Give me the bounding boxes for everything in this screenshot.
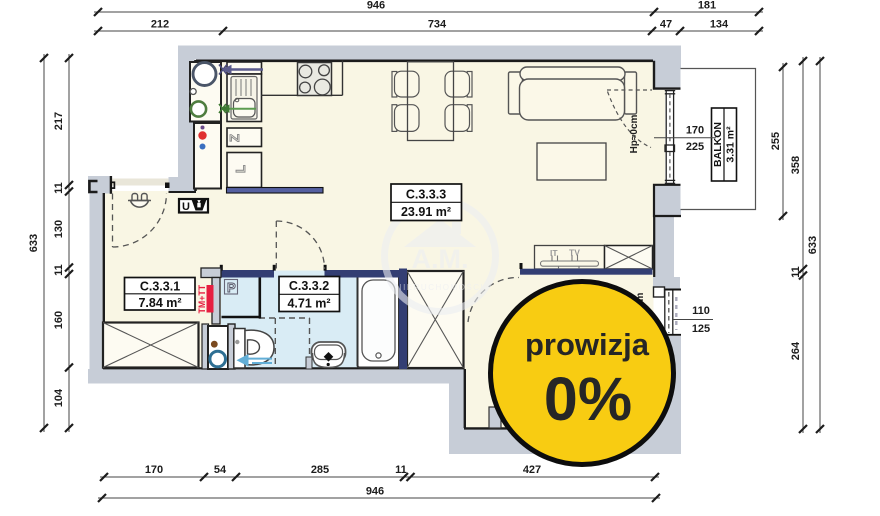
- svg-text:11: 11: [53, 264, 65, 276]
- svg-text:427: 427: [523, 464, 541, 476]
- svg-text:TM+TT: TM+TT: [197, 284, 207, 313]
- svg-text:11: 11: [53, 182, 65, 194]
- svg-text:C.3.3.1: C.3.3.1: [140, 280, 180, 294]
- svg-text:255: 255: [770, 132, 782, 150]
- svg-text:285: 285: [311, 464, 329, 476]
- svg-text:C.3.3.3: C.3.3.3: [406, 188, 446, 202]
- svg-text:130: 130: [53, 220, 65, 238]
- svg-text:A.M.: A.M.: [412, 244, 469, 274]
- svg-text:264: 264: [790, 341, 802, 360]
- svg-text:181: 181: [698, 0, 716, 12]
- svg-text:prowizja: prowizja: [525, 327, 650, 362]
- svg-text:225: 225: [686, 141, 704, 153]
- svg-text:NIERUCHOMOŚCI: NIERUCHOMOŚCI: [396, 283, 484, 292]
- svg-text:125: 125: [692, 323, 710, 335]
- svg-text:P: P: [227, 280, 236, 295]
- svg-text:110: 110: [692, 305, 710, 317]
- svg-text:0%: 0%: [544, 365, 632, 433]
- svg-text:633: 633: [28, 234, 40, 252]
- svg-text:C.3.3.2: C.3.3.2: [289, 279, 329, 293]
- svg-text:47: 47: [660, 19, 672, 31]
- svg-text:734: 734: [428, 19, 447, 31]
- svg-text:23.91 m²: 23.91 m²: [401, 205, 451, 219]
- svg-text:946: 946: [367, 0, 385, 12]
- svg-text:358: 358: [790, 156, 802, 174]
- svg-text:U: U: [182, 201, 190, 213]
- svg-text:11: 11: [395, 464, 407, 476]
- svg-text:633: 633: [807, 236, 819, 254]
- svg-text:160: 160: [53, 311, 65, 329]
- svg-text:7.84 m²: 7.84 m²: [138, 296, 181, 310]
- svg-text:104: 104: [53, 388, 65, 407]
- svg-text:3.31 m²: 3.31 m²: [725, 126, 737, 163]
- svg-text:4.71 m²: 4.71 m²: [287, 297, 330, 311]
- svg-text:170: 170: [686, 125, 704, 137]
- svg-text:11: 11: [790, 266, 802, 278]
- svg-text:217: 217: [53, 112, 65, 130]
- svg-text:Hp≈0cm: Hp≈0cm: [629, 114, 640, 153]
- svg-text:212: 212: [151, 19, 169, 31]
- svg-text:946: 946: [366, 486, 384, 498]
- svg-text:54: 54: [214, 464, 227, 476]
- svg-text:BALKON: BALKON: [712, 122, 724, 167]
- svg-text:Z: Z: [227, 134, 242, 142]
- svg-text:170: 170: [145, 464, 163, 476]
- svg-text:L: L: [233, 165, 248, 173]
- svg-text:134: 134: [710, 19, 729, 31]
- svg-text:TV: TV: [569, 248, 580, 258]
